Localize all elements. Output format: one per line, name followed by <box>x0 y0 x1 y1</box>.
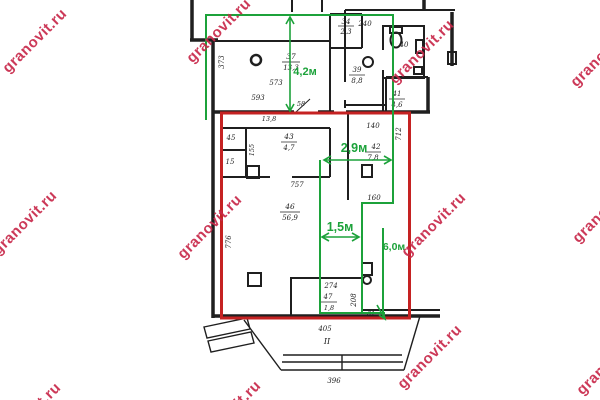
column <box>251 55 261 65</box>
measure-label-2-9m: 2,9м <box>341 141 368 155</box>
door-gap <box>381 50 386 70</box>
dim-405: 405 <box>317 325 332 333</box>
dim-573: 573 <box>269 79 283 87</box>
watermark-text: granovit.ru <box>0 5 70 76</box>
floor-plan-image: 34 2,3 240 40 37 13,3 373 573 593 58 39 … <box>0 0 600 400</box>
room-40-number: 40 <box>399 41 409 49</box>
dim-160: 160 <box>367 194 381 202</box>
dim-373: 373 <box>218 55 226 69</box>
toilet-tank <box>390 27 402 33</box>
watermark-text: granovit.ru <box>174 191 245 262</box>
room-47-area: 1,8 <box>324 304 334 312</box>
dim-240: 240 <box>357 20 372 28</box>
porch-steps <box>244 316 420 370</box>
watermark-text: granovit.ru <box>193 377 264 400</box>
watermark-text: granovit.ru <box>394 321 465 392</box>
room-45-number: 45 <box>226 134 236 142</box>
room-37-number: 37 <box>286 52 296 61</box>
watermarks: granovit.ru granovit.ru granovit.ru gran… <box>0 0 600 400</box>
dim-13-8: 13,8 <box>262 115 276 123</box>
room-42-number: 42 <box>371 143 381 151</box>
fixture <box>362 263 372 275</box>
scanned-floor-plan-page: 34 2,3 240 40 37 13,3 373 573 593 58 39 … <box>0 0 600 400</box>
room-34-number: 34 <box>342 18 351 26</box>
dim-208: 208 <box>350 293 358 308</box>
room-15-number: 15 <box>226 158 235 166</box>
door-gap <box>343 82 348 100</box>
dim-58: 58 <box>297 100 305 108</box>
watermark-text: granovit.ru <box>567 19 600 90</box>
measure-label-1-5m: 1,5м <box>327 220 354 234</box>
measure-label-4-2m: 4,2м <box>293 66 316 78</box>
room-43-area: 4,7 <box>282 144 295 152</box>
green-measure-outline <box>206 15 393 319</box>
watermark-text: granovit.ru <box>569 175 600 246</box>
fixture <box>248 273 261 286</box>
room-34-area: 2,3 <box>339 28 352 36</box>
door-gap <box>270 173 292 181</box>
green-corridor-lines <box>362 228 385 313</box>
dim-757: 757 <box>290 181 304 189</box>
entrance-porch <box>204 316 420 370</box>
dim-776: 776 <box>225 235 233 249</box>
room-46-number: 46 <box>284 202 295 211</box>
sink <box>363 57 373 67</box>
watermark-text: granovit.ru <box>573 327 600 398</box>
room-39-number: 39 <box>353 66 362 74</box>
fixture <box>362 165 372 177</box>
room-39-area: 8,8 <box>351 77 363 85</box>
watermark-text: granovit.ru <box>0 379 64 400</box>
porch-II-label: II <box>323 337 331 346</box>
dim-155: 155 <box>248 144 256 156</box>
ramp <box>208 332 254 352</box>
room-46-area: 56,9 <box>282 214 298 222</box>
red-highlight-outline <box>222 113 410 318</box>
room-47-number: 47 <box>323 293 333 301</box>
dim-593: 593 <box>251 94 265 102</box>
dim-274: 274 <box>323 282 337 290</box>
dim-140: 140 <box>366 122 380 130</box>
dim-396: 396 <box>327 377 341 385</box>
fixture <box>363 276 371 284</box>
room-43-number: 43 <box>283 132 294 141</box>
watermark-text: granovit.ru <box>0 187 60 258</box>
ramp <box>204 318 250 338</box>
dim-712: 712 <box>395 127 403 141</box>
